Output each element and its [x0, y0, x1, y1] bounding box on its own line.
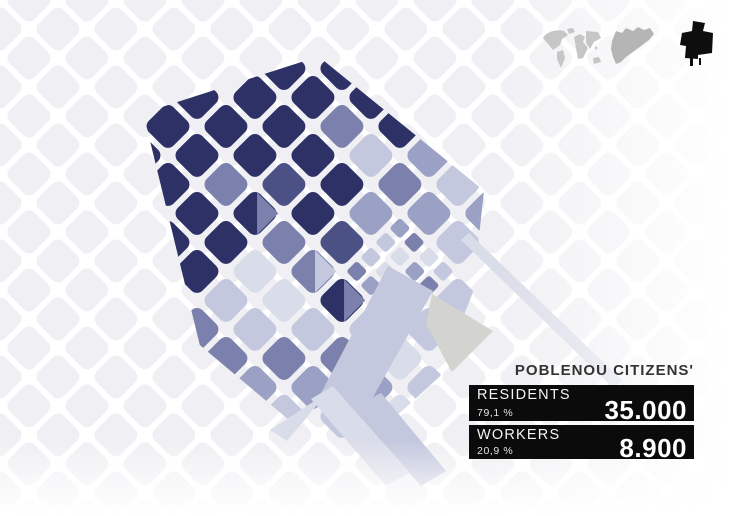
stat-box-residents: RESIDENTS 79,1 % 35.000 [469, 385, 694, 421]
workers-value: 8.900 [619, 433, 687, 464]
residents-value: 35.000 [604, 395, 687, 426]
workers-percent: 20,9 % [477, 445, 513, 457]
workers-label: WORKERS [477, 427, 560, 443]
stats-panel: POBLENOU CITIZENS' RESIDENTS 79,1 % 35.0… [456, 362, 694, 463]
stats-title: POBLENOU CITIZENS' [456, 362, 694, 379]
infographic-canvas: POBLENOU CITIZENS' RESIDENTS 79,1 % 35.0… [0, 0, 730, 516]
residents-percent: 79,1 % [477, 407, 513, 419]
residents-label: RESIDENTS [477, 387, 571, 403]
stat-box-workers: WORKERS 20,9 % 8.900 [469, 425, 694, 459]
